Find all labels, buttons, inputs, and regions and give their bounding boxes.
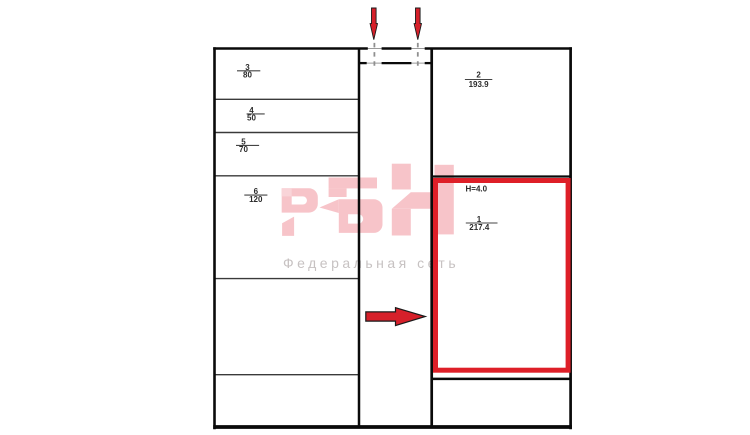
svg-text:2: 2 — [476, 71, 481, 80]
svg-text:80: 80 — [243, 70, 252, 79]
svg-text:H=4.0: H=4.0 — [466, 185, 488, 194]
svg-text:193.9: 193.9 — [469, 80, 490, 89]
svg-text:70: 70 — [239, 145, 248, 154]
svg-text:50: 50 — [247, 113, 256, 122]
svg-text:217.4: 217.4 — [469, 223, 490, 232]
svg-text:120: 120 — [249, 195, 263, 204]
